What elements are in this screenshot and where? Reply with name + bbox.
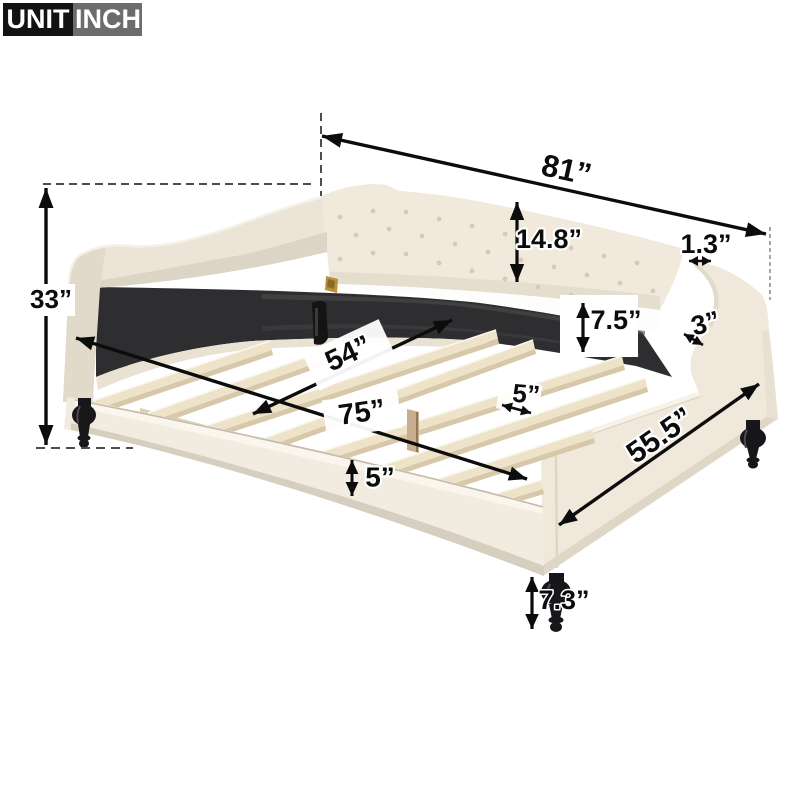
- svg-text:5”: 5”: [511, 378, 541, 410]
- svg-text:14.8”: 14.8”: [516, 224, 582, 254]
- svg-text:7.5”: 7.5”: [590, 305, 641, 335]
- svg-text:INCH: INCH: [75, 4, 141, 34]
- svg-text:75”: 75”: [336, 394, 387, 432]
- svg-text:33”: 33”: [30, 284, 72, 314]
- svg-text:UNIT: UNIT: [7, 4, 70, 34]
- svg-text:7.3”: 7.3”: [538, 585, 589, 615]
- svg-text:1.3”: 1.3”: [680, 229, 731, 259]
- svg-text:5”: 5”: [365, 461, 395, 492]
